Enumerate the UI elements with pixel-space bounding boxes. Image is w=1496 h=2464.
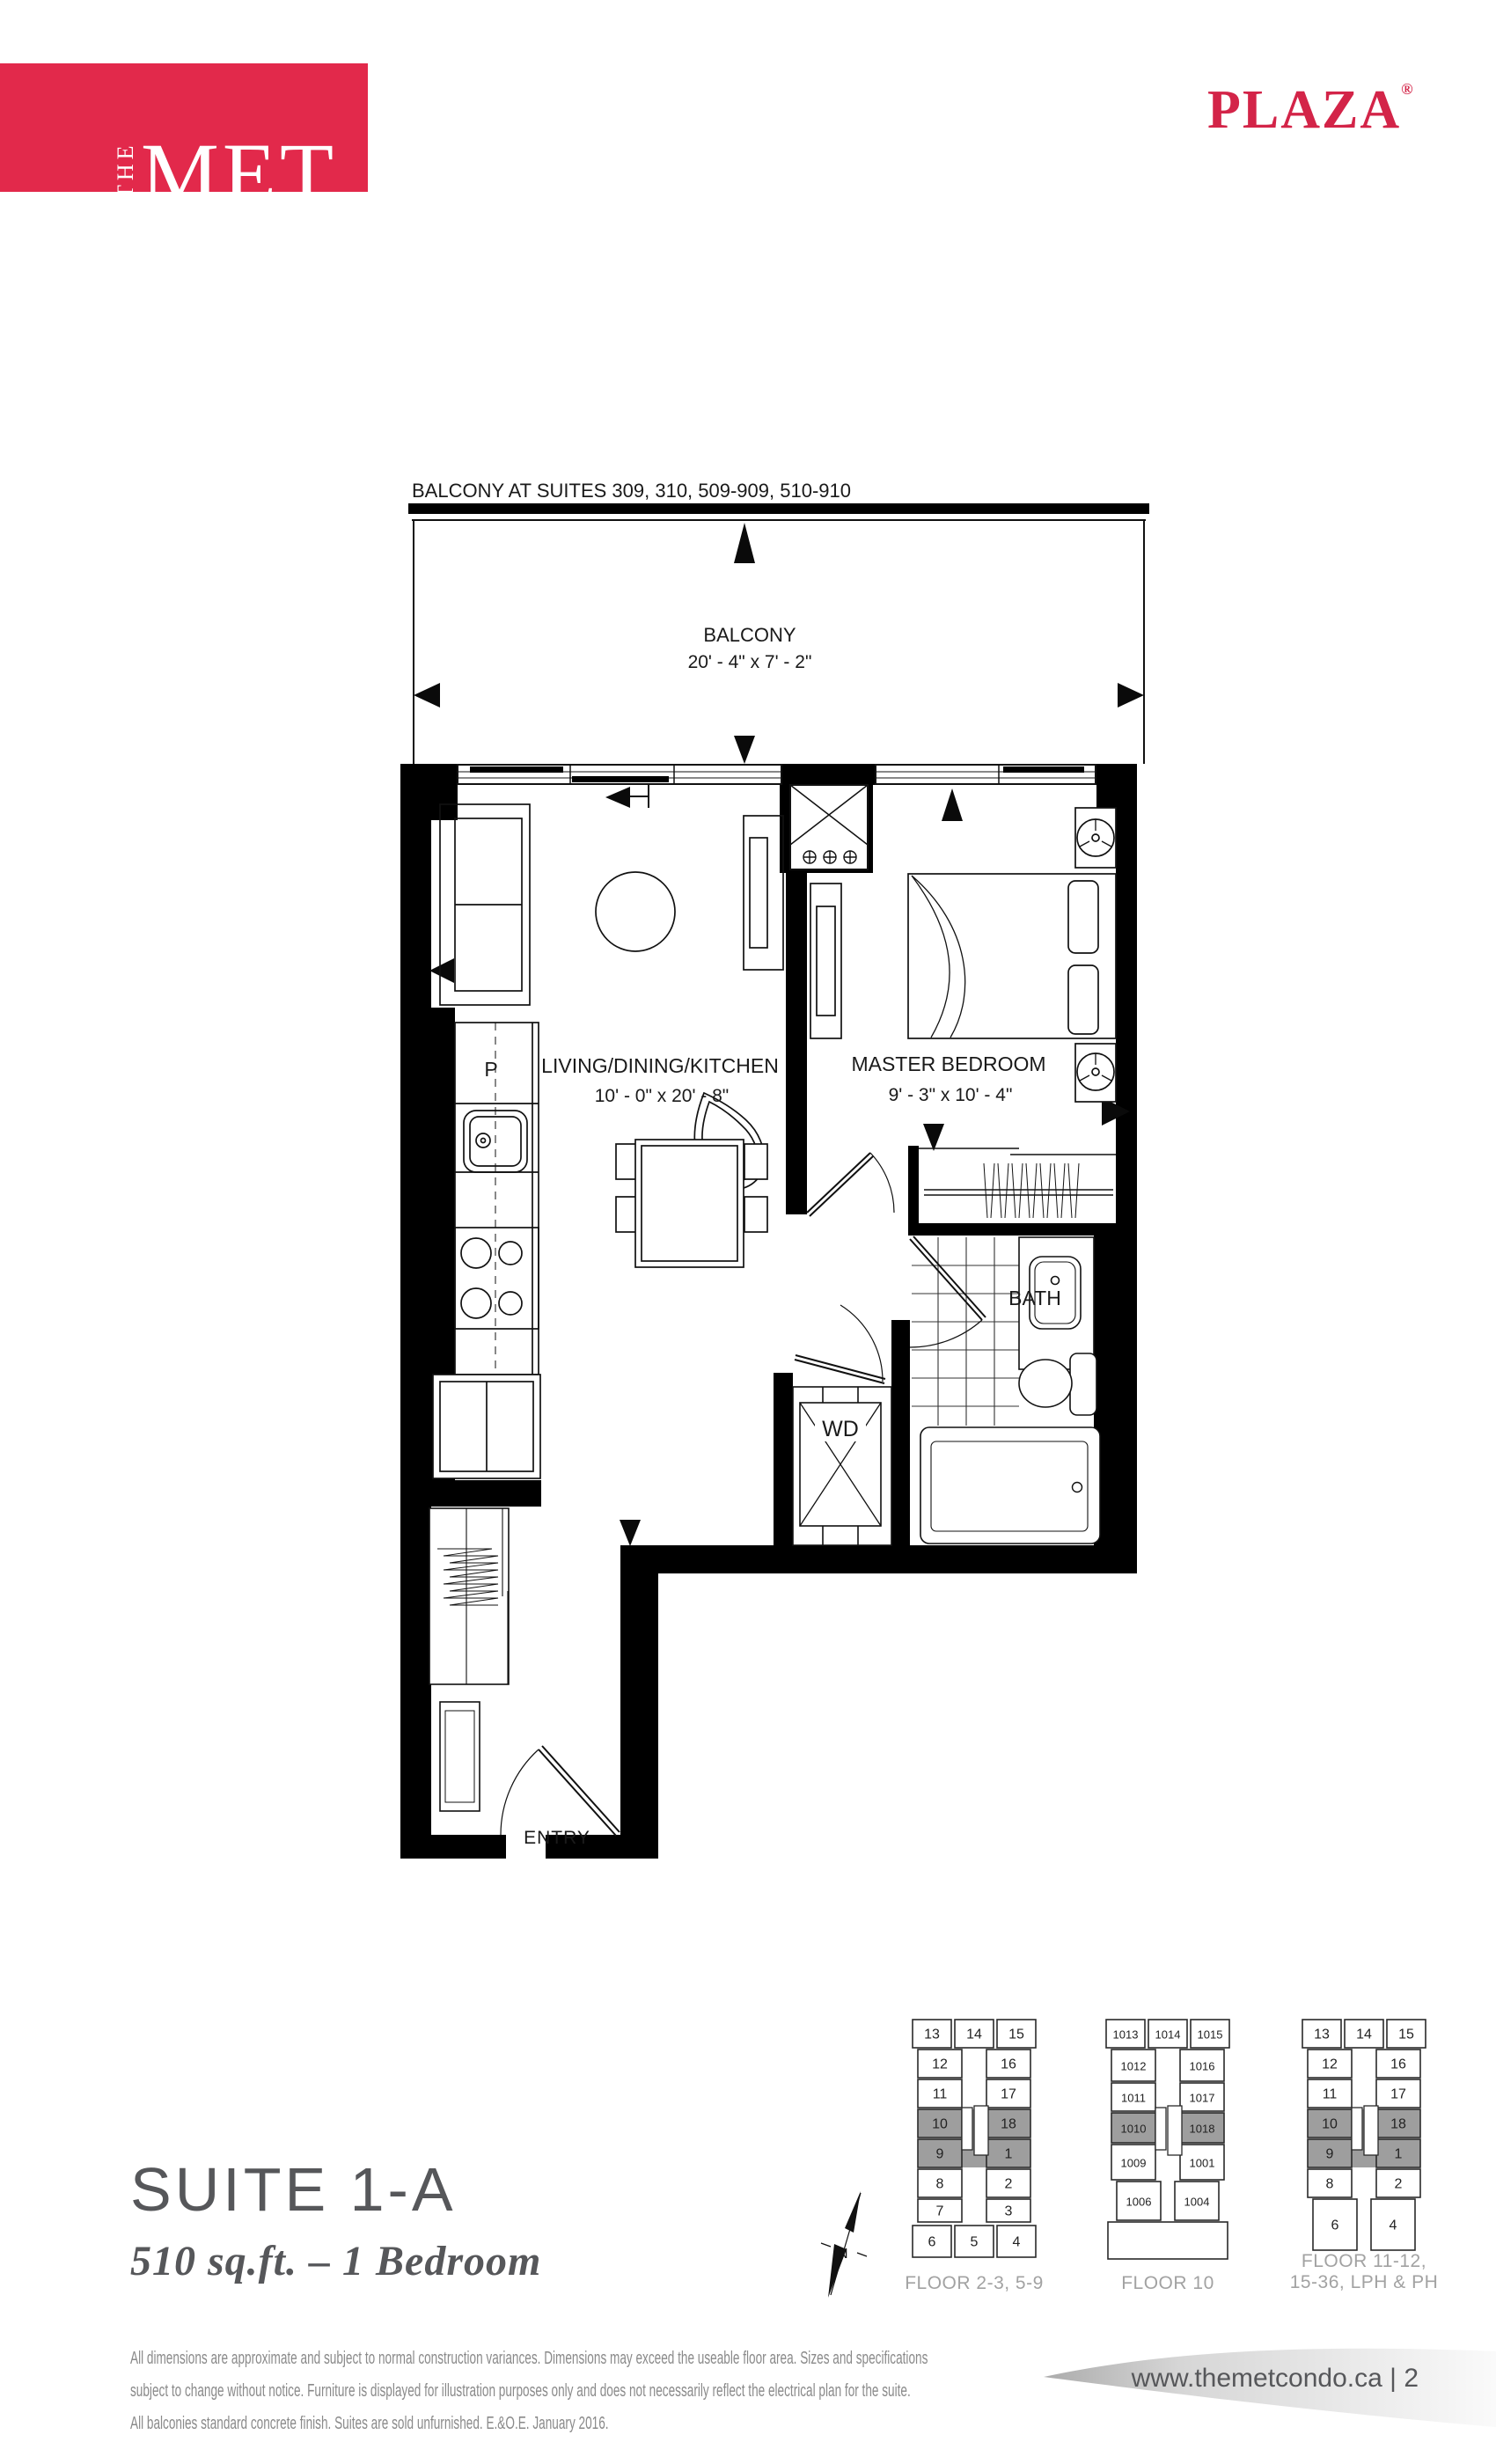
keyplan: 131415121110987161718123654FLOOR 2-3, 5-…	[905, 2020, 1044, 2293]
floorplan-page: THE MET AT VAUGHAN METROPOLITAN CENTRE P…	[0, 0, 1496, 2464]
floor-plan-svg: BALCONY AT SUITES 309, 310, 509-909, 510…	[0, 0, 1496, 2464]
keyplan-unit-number: 1006	[1126, 2196, 1152, 2209]
keyplan-title: 15-36, LPH & PH	[1290, 2272, 1439, 2292]
dim-arrow-down-icon	[734, 736, 755, 764]
balcony-dims: 20' - 4" x 7' - 2"	[688, 652, 812, 672]
keyplan-unit-number: 1010	[1121, 2123, 1147, 2136]
keyplan-unit-number: 8	[936, 2177, 944, 2192]
bed	[908, 874, 1116, 1038]
keyplan-unit-number: 1	[1395, 2147, 1403, 2162]
disclaimer-line: All balconies standard concrete finish. …	[130, 2408, 968, 2440]
keyplan-title: FLOOR 10	[1121, 2273, 1214, 2293]
keyplan-unit-number: 14	[966, 2028, 982, 2042]
keyplan-unit-number: 4	[1390, 2218, 1397, 2233]
entry-console	[440, 1702, 480, 1811]
sofa-side-arrow-icon	[429, 958, 454, 983]
round-table	[596, 872, 675, 951]
dim-arrow-up-icon	[734, 523, 755, 563]
vestibule-arrow-icon	[923, 1124, 944, 1151]
keyplan-unit-number: 7	[936, 2204, 944, 2219]
keyplan-unit-number: 1009	[1121, 2157, 1147, 2170]
north-label: N	[838, 2247, 848, 2262]
entry-closet	[429, 1508, 509, 1684]
oven-unit	[790, 785, 868, 869]
disclaimer-line: subject to change without notice. Furnit…	[130, 2375, 968, 2408]
keyplan: 131415121110986161718124FLOOR 11-12,15-3…	[1290, 2020, 1439, 2292]
keyplan-unit-number: 18	[1390, 2117, 1406, 2132]
entry-area	[429, 1508, 509, 1811]
keyplan-unit-number: 16	[1390, 2057, 1406, 2072]
keyplan-unit-number: 8	[1326, 2177, 1334, 2192]
keyplan-unit-number: 1001	[1190, 2157, 1215, 2170]
bedroom-window-arrow-icon	[942, 788, 963, 821]
suite-details: 510 sq.ft. – 1 Bedroom	[130, 2237, 541, 2285]
keyplan-unit-number: 10	[932, 2117, 948, 2132]
bath-label: BATH	[1008, 1287, 1061, 1309]
keyplan-unit-number: 9	[1326, 2147, 1334, 2162]
nightstand-top	[1075, 808, 1116, 868]
entry-door	[539, 1746, 620, 1836]
bedroom-dims: 9' - 3" x 10' - 4"	[889, 1085, 1013, 1105]
keyplan-unit-number: 1016	[1190, 2060, 1215, 2073]
disclaimer-line: All dimensions are approximate and subje…	[130, 2343, 968, 2375]
keyplan-unit-number: 2	[1395, 2177, 1403, 2192]
balcony-label: BALCONY	[703, 624, 796, 646]
keyplan: 1013101410151012101110101009100610161017…	[1106, 2020, 1229, 2293]
keyplan-unit-number: 18	[1001, 2117, 1016, 2132]
living-dims: 10' - 0" x 20' - 8"	[595, 1086, 730, 1106]
dim-arrow-right-icon	[1118, 683, 1144, 708]
keyplan-unit-number: 11	[933, 2087, 948, 2102]
window-bedroom	[876, 765, 1096, 784]
keyplan-unit-number: 9	[936, 2147, 944, 2162]
balcony: BALCONY 20' - 4" x 7' - 2"	[408, 503, 1149, 764]
keyplan-unit-number: 13	[1314, 2028, 1330, 2042]
keyplan-unit-number: 1015	[1198, 2028, 1223, 2042]
keyplan-unit-number: 14	[1356, 2028, 1372, 2042]
keyplan-unit-number: 1018	[1190, 2123, 1215, 2136]
suite-title-block: SUITE 1-A 510 sq.ft. – 1 Bedroom	[130, 2154, 541, 2285]
keyplan-unit-number: 13	[924, 2028, 940, 2042]
keyplan-unit-number: 11	[1323, 2087, 1338, 2102]
keyplan-unit-number: 3	[1005, 2204, 1013, 2219]
pantry-label: P	[484, 1058, 497, 1081]
balcony-note: BALCONY AT SUITES 309, 310, 509-909, 510…	[412, 480, 851, 502]
keyplans: 131415121110987161718123654FLOOR 2-3, 5-…	[905, 2020, 1438, 2293]
wd-door	[795, 1355, 885, 1383]
keyplan-unit-number: 6	[1331, 2218, 1339, 2233]
window-living	[458, 765, 781, 784]
dim-arrow-left-icon	[414, 683, 440, 708]
keyplan-unit-number: 12	[1322, 2057, 1338, 2072]
toilet	[1019, 1360, 1072, 1407]
keyplan-unit-number: 1014	[1155, 2028, 1181, 2042]
suite-name: SUITE 1-A	[130, 2154, 541, 2225]
entry-label: ENTRY	[524, 1828, 590, 1848]
disclaimer: All dimensions are approximate and subje…	[130, 2343, 968, 2440]
keyplan-unit-number: 15	[1398, 2028, 1414, 2042]
toilet-tank	[1070, 1353, 1096, 1415]
keyplan-unit-number: 1	[1005, 2147, 1013, 2162]
keyplan-unit-number: 17	[1390, 2087, 1406, 2102]
footer-separator: |	[1390, 2364, 1397, 2393]
bedroom-door	[807, 1153, 873, 1216]
hall-arrow-icon	[620, 1520, 641, 1546]
keyplan-unit-number: 1004	[1184, 2196, 1210, 2209]
nightstand-bottom	[1075, 1044, 1116, 1102]
keyplan-unit-number: 6	[928, 2235, 936, 2250]
keyplan-unit-number: 12	[932, 2057, 948, 2072]
website-link[interactable]: www.themetcondo.ca	[1132, 2364, 1382, 2393]
keyplan-unit-number: 4	[1013, 2235, 1021, 2250]
living-label: LIVING/DINING/KITCHEN	[541, 1054, 779, 1077]
keyplan-unit-number: 1017	[1190, 2092, 1215, 2105]
wd-label: WD	[822, 1417, 859, 1441]
bath-door	[910, 1236, 986, 1320]
page-number: 2	[1404, 2364, 1419, 2393]
keyplan-unit-number: 10	[1322, 2117, 1338, 2132]
keyplan-unit-number: 16	[1001, 2057, 1016, 2072]
bedroom-closet	[919, 1148, 1116, 1218]
bedroom-label: MASTER BEDROOM	[851, 1052, 1045, 1075]
keyplan-unit-number: 1011	[1121, 2092, 1146, 2105]
washer-dryer	[793, 1387, 891, 1545]
keyplan-unit-number: 5	[971, 2235, 979, 2250]
footer: www.themetcondo.ca | 2	[1038, 2364, 1419, 2394]
dining-set	[616, 1140, 767, 1267]
keyplan-unit-number: 2	[1005, 2177, 1013, 2192]
north-arrow: N	[821, 2191, 867, 2298]
keyplan-unit-number: 15	[1008, 2028, 1024, 2042]
keyplan-unit-number: 1013	[1113, 2028, 1139, 2042]
keyplan-unit-number: 17	[1001, 2087, 1016, 2102]
bathroom	[912, 1237, 1100, 1544]
keyplan-unit-number: 1012	[1121, 2060, 1147, 2073]
balcony-door-arrow-icon	[605, 787, 630, 808]
keyplan-title: FLOOR 2-3, 5-9	[905, 2273, 1044, 2293]
keyplan-title: FLOOR 11-12,	[1302, 2251, 1426, 2271]
